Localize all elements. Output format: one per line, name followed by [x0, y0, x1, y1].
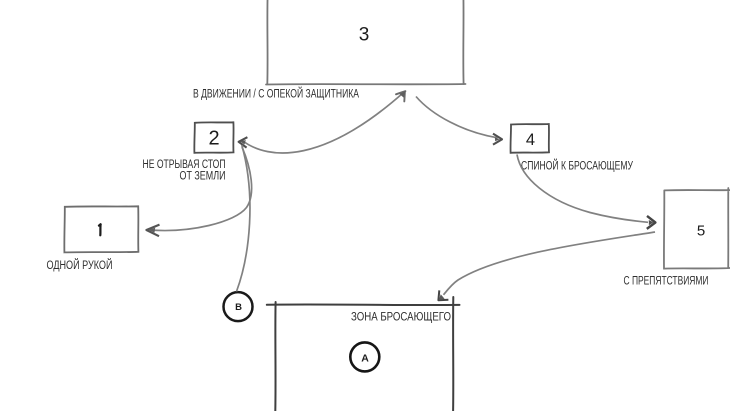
svg-text:ЗОНА БРОСАЮЩЕГО: ЗОНА БРОСАЮЩЕГО [351, 312, 451, 324]
svg-text:2: 2 [208, 128, 219, 150]
svg-text:В: В [235, 302, 242, 313]
svg-text:НЕ ОТРЫВАЯ СТОП: НЕ ОТРЫВАЯ СТОП [143, 159, 226, 171]
svg-text:ОДНОЙ РУКОЙ: ОДНОЙ РУКОЙ [47, 259, 113, 272]
svg-text:В ДВИЖЕНИИ / С ОПЕКОЙ ЗАЩИТНИК: В ДВИЖЕНИИ / С ОПЕКОЙ ЗАЩИТНИКА [193, 88, 359, 101]
svg-text:СПИНОЙ К БРОСАЮЩЕМУ: СПИНОЙ К БРОСАЮЩЕМУ [521, 160, 634, 173]
svg-text:ОТ ЗЕМЛИ: ОТ ЗЕМЛИ [180, 170, 226, 182]
svg-text:С ПРЕПЯТСТВИЯМИ: С ПРЕПЯТСТВИЯМИ [624, 275, 709, 287]
svg-text:5: 5 [697, 223, 705, 240]
svg-text:3: 3 [359, 25, 370, 46]
svg-text:4: 4 [526, 131, 535, 149]
svg-text:А: А [361, 352, 369, 364]
